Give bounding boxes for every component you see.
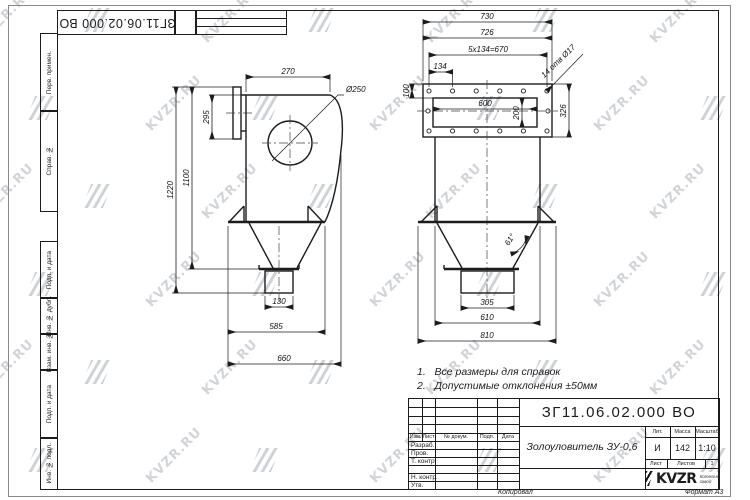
top-stamp-doc-number-text: ЗГ11.06.02.000 ВО [59,16,175,30]
tb-scale-value: 1:10 [695,437,719,459]
tb-header-list: Лист [422,433,435,441]
kvzr-sub-line2: завод [700,479,719,484]
note-2: 2. Допустимые отклонения ±50мм [417,380,597,392]
margin-label: Взам. инв. № [46,332,53,372]
tb-doc-number: ЗГ11.06.02.000 ВО [519,399,719,426]
dim-730: 730 [480,12,494,21]
tb-row-razrab: Разраб. [409,441,437,449]
ash-outlet-side [461,271,514,293]
tb-row-nkontr: Н. контр. [409,473,437,481]
dim-130: 130 [272,297,286,306]
dim-610: 610 [480,313,494,322]
dim-61deg: 61° [503,231,518,247]
dim-326: 326 [559,104,568,118]
tb-mass-header: Масса [670,426,695,437]
margin-box-podp-data-1: Подп. и дата [40,241,58,299]
dim-holes: 14 отв Ø17 [539,42,577,79]
tb-lit-header: Лит. [645,426,670,437]
tb-header-izm: Изм. [409,433,422,441]
dim-305: 305 [480,298,494,307]
tb-sheet-header: Лист [645,459,667,468]
tb-row-utv: Утв. [409,481,437,489]
margin-box-perv-primen: Перв. примен. [40,33,58,112]
dim-660: 660 [277,354,291,363]
kvzr-logo-text: KVZR [656,471,697,487]
dim-d250: Ø250 [345,85,366,94]
note-2-text: Допустимые отклонения ±50мм [435,380,598,392]
tb-row-tkontr: Т. контр. [409,457,437,465]
dim-200: 200 [512,106,521,121]
dim-295: 295 [202,110,211,125]
note-1-text: Все размеры для справок [435,366,561,378]
tb-lit-value: И [645,437,670,459]
volute-outline [241,95,342,222]
top-stamp-cell-rows [195,10,287,35]
dim-670: 5x134=670 [468,45,508,54]
body-walls [435,137,540,222]
dim-1100: 1100 [182,169,191,187]
note-1-num: 1. [417,366,426,378]
dim-270: 270 [280,67,295,76]
drawing-sheet: KVZR.RUKVZR.RUKVZR.RUKVZR.RUKVZR.RUKVZR.… [0,0,750,500]
tb-header-data: Дата [497,433,519,441]
margin-box-vzam-inv: Взам. инв. № [40,333,58,371]
top-stamp-cell-small [174,10,197,35]
tb-sheets-value: 1 [705,459,719,468]
dim-100: 100 [402,84,411,98]
hopper-front [249,223,321,268]
format-label: Формат А3 [685,489,723,496]
kvzr-company-subtitle: Котельный завод [700,474,719,484]
tb-header-doc: № докум. [435,433,477,441]
dim-810: 810 [480,331,494,340]
margin-label: Перв. примен. [46,51,53,94]
side-view: 730 726 5x134=670 134 14 отв Ø17 100 326… [402,12,583,344]
margin-label: Подп. и дата [46,385,53,423]
dim-1220: 1220 [166,181,175,199]
margin-label: Инв. № дубл. [46,296,53,336]
inlet-flange-face [423,84,552,137]
tb-header-podp: Подп. [477,433,497,441]
title-block: Изм. Лист № докум. Подп. Дата Разраб. Пр… [408,398,720,490]
gussets-front [229,206,323,222]
gussets-side [421,206,554,222]
tb-row-prov: Пров. [409,449,437,457]
dim-134: 134 [433,62,447,71]
tb-company-cell: KVZR Котельный завод [645,468,719,489]
margin-box-inv-podl: Инв. № подл. [40,437,58,490]
kvzr-logo-icon [645,471,653,486]
margin-box-inv-dubl: Инв. № дубл. [40,297,58,335]
tb-mass-value: 142 [670,437,695,459]
tb-sheets-header: Листов [667,459,705,468]
margin-label: Справ. № [46,146,53,176]
dim-585: 585 [269,322,283,331]
note-1: 1. Все размеры для справок [417,366,560,378]
front-view: 270 Ø250 295 1100 1220 130 585 660 [166,67,366,367]
margin-label: Инв. № подл. [46,443,53,484]
margin-box-sprav-n: Справ. № [40,110,58,212]
tb-scale-header: Масштаб [695,426,719,437]
dim-600: 600 [478,99,492,108]
margin-label: Подп. и дата [46,251,53,289]
tb-product-name: Золоуловитель ЗУ-0,6 [519,426,645,468]
top-stamp-doc-number: ЗГ11.06.02.000 ВО [57,10,176,35]
margin-box-podp-data-2: Подп. и дата [40,369,58,439]
note-2-num: 2. [417,380,426,392]
dim-726: 726 [480,28,494,37]
copied-label: Копировал [498,489,533,496]
